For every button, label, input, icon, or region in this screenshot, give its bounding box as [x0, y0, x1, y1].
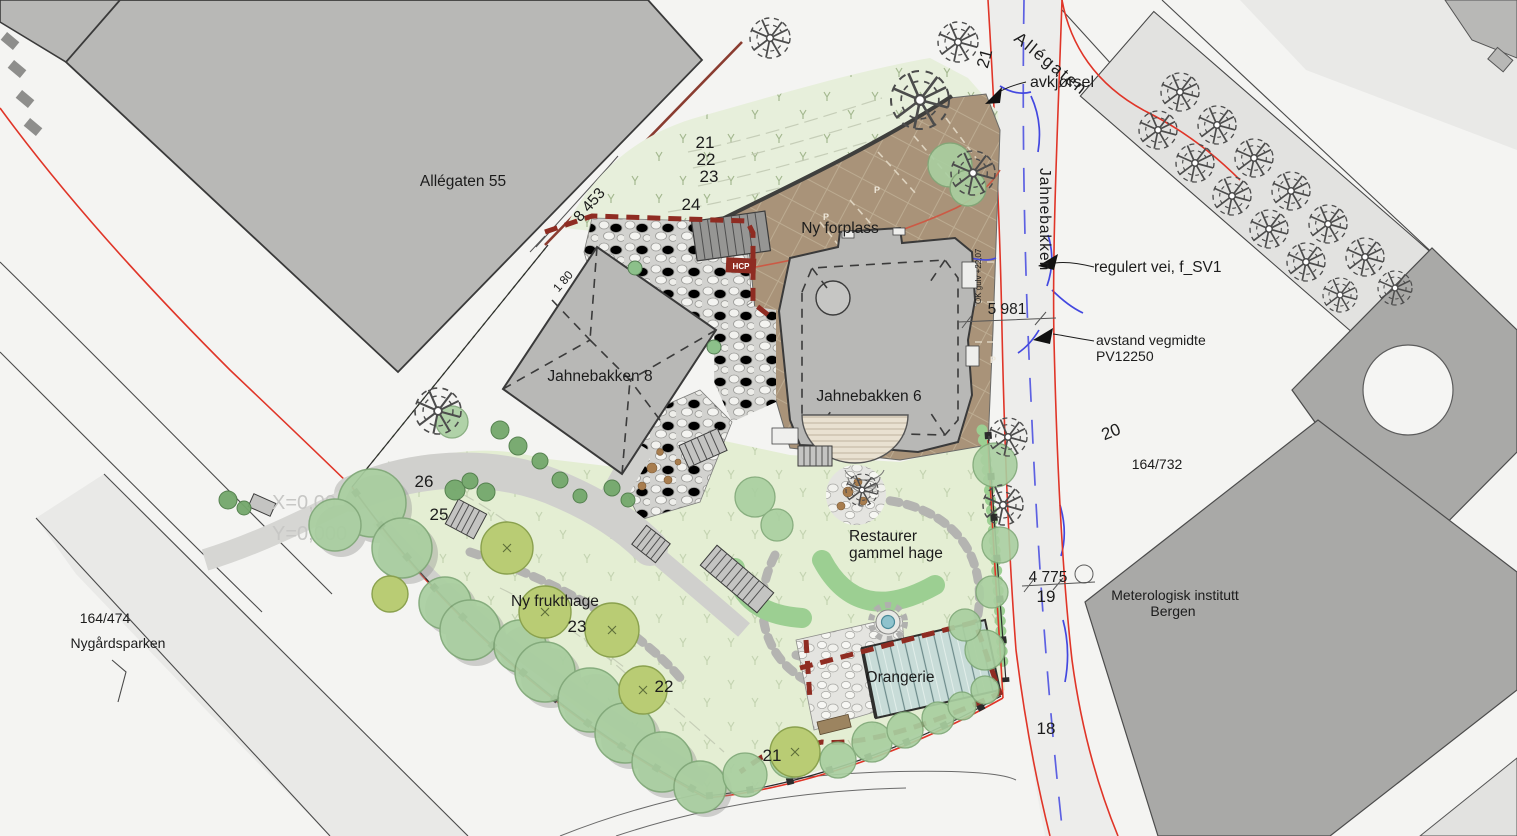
label-contour-25: 25 — [430, 505, 449, 524]
label-jahnebakken8: Jahnebakken 8 — [547, 368, 652, 385]
label-contour-18: 18 — [1037, 719, 1056, 738]
site-plan-svg: X=0,00 Y=0,000 — [0, 0, 1517, 836]
label-avstand-2: PV12250 — [1096, 348, 1154, 364]
label-met-2: Bergen — [1150, 603, 1195, 619]
label-regulert-vei: regulert vei, f_SV1 — [1094, 259, 1222, 276]
label-contour-23l: 23 — [568, 617, 587, 636]
label-dim-5981: 5 981 — [988, 301, 1027, 318]
site-plan-canvas: X=0,00 Y=0,000 — [0, 0, 1517, 836]
label-avstand-1: avstand vegmidte — [1096, 332, 1206, 348]
label-nygardsparken: Nygårdsparken — [71, 635, 166, 651]
stairs-west — [798, 446, 832, 466]
met-entrance — [1075, 565, 1093, 583]
label-contour-26: 26 — [415, 472, 434, 491]
label-p2: P — [874, 185, 880, 195]
label-restaurer-1: Restaurer — [849, 528, 917, 545]
label-dim-4775: 4 775 — [1029, 569, 1068, 586]
label-contour-21l: 21 — [763, 746, 782, 765]
label-hcp: HCP — [733, 262, 751, 271]
label-jahnebakken-street: Jahnebakken — [1036, 168, 1053, 271]
label-ny-frukthage: Ny frukthage — [511, 593, 599, 610]
label-parcel-164-474: 164/474 — [80, 610, 131, 626]
label-met-1: Meterologisk institutt — [1111, 587, 1239, 603]
label-contour-22l: 22 — [655, 677, 674, 696]
label-ny-forplass: Ny forplass — [801, 220, 879, 237]
label-ok-gulv: OK gulv +22,07 — [974, 248, 983, 304]
label-jahnebakken6: Jahnebakken 6 — [816, 388, 921, 405]
label-allegaten55: Allégaten 55 — [420, 173, 506, 190]
label-p3: P — [990, 355, 996, 365]
label-restaurer-2: gammel hage — [849, 545, 943, 562]
label-parcel-164-732: 164/732 — [1132, 456, 1183, 472]
diamond-courtyard — [1363, 345, 1453, 435]
label-p1: P — [823, 212, 829, 222]
label-orangerie: Orangerie — [866, 669, 935, 686]
label-contour-23u: 23 — [700, 167, 719, 186]
label-contour-24: 24 — [682, 195, 701, 214]
label-contour-19: 19 — [1037, 587, 1056, 606]
label-avkjorsel: avkjørsel — [1030, 74, 1094, 91]
